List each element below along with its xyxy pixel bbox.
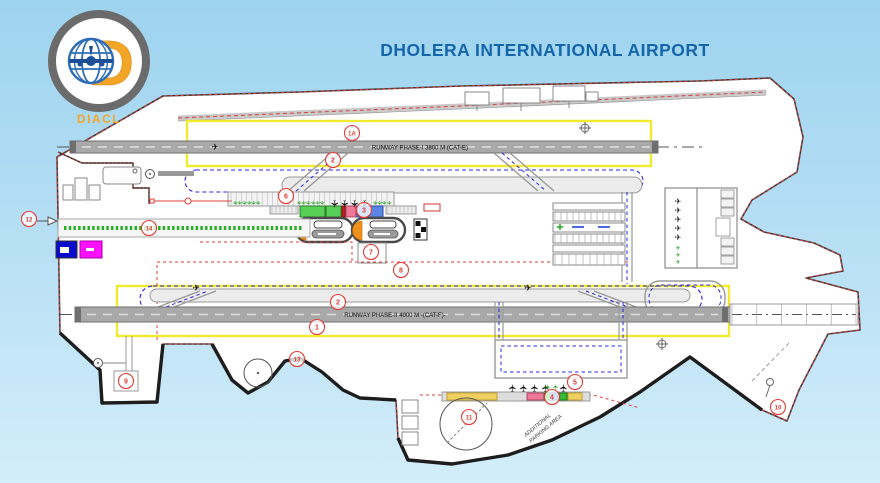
svg-text:12: 12: [26, 217, 33, 223]
callout-1A: 1A: [345, 126, 360, 141]
svg-text:11: 11: [466, 415, 473, 421]
callout-2: 2: [326, 153, 341, 168]
aircraft-icon: ✈: [192, 283, 200, 293]
svg-text:7: 7: [369, 249, 373, 256]
svg-text:3: 3: [362, 207, 366, 214]
airport-masterplan-screen: RUNWAY PHASE-I 3800 M (CAT-E): [0, 0, 880, 483]
svg-text:2: 2: [336, 299, 340, 306]
svg-text:5: 5: [573, 379, 577, 386]
south-small-buildings: [402, 400, 418, 445]
aircraft-icon: ✈: [254, 200, 261, 205]
callout-1: 1: [310, 320, 325, 335]
svg-text:13: 13: [294, 357, 301, 363]
aircraft-icon: ✈: [328, 200, 339, 208]
logo-text: DIACL: [77, 112, 121, 126]
callout-10: 10: [771, 400, 786, 415]
callout-14: 14: [142, 221, 157, 236]
runway2-future-extension: [730, 304, 858, 325]
entry-arrow: [37, 217, 57, 225]
aircraft-icon: ✈: [675, 233, 682, 242]
aircraft-icon: ✈: [524, 283, 532, 293]
callout-4: 4: [545, 390, 560, 405]
west-access-road: [58, 219, 310, 237]
aircraft-icon: ✈: [675, 252, 680, 259]
svg-text:1: 1: [315, 324, 319, 331]
callout-12: 12: [22, 212, 37, 227]
south-stand-strip: [442, 392, 590, 401]
svg-text:6: 6: [284, 193, 288, 200]
aircraft-icon: ✈: [675, 259, 680, 266]
callout-5: 5: [568, 375, 583, 390]
site-outline: [57, 78, 860, 464]
svg-text:9: 9: [124, 378, 128, 385]
aircraft-icon: ✈: [530, 384, 541, 392]
aircraft-icon: ✈: [675, 224, 682, 233]
aircraft-icon: ✈: [338, 200, 349, 208]
landside-loop-east: [352, 218, 405, 242]
aircraft-icon: ✈: [519, 384, 530, 392]
svg-text:4: 4: [550, 394, 554, 401]
callout-8: 8: [394, 263, 409, 278]
callout-2: 2: [331, 295, 346, 310]
svg-text:8: 8: [399, 267, 403, 274]
callout-3: 3: [357, 203, 372, 218]
svg-text:1A: 1A: [348, 131, 356, 137]
airport-logo: D DIACL: [52, 14, 146, 126]
aircraft-icon: ✈: [385, 200, 392, 205]
aircraft-icon: ✈: [508, 384, 519, 392]
svg-text:10: 10: [775, 405, 782, 411]
aircraft-icon: ✈: [675, 245, 680, 252]
callout-13: 13: [290, 352, 305, 367]
svg-text:2: 2: [331, 157, 335, 164]
runway-phase1: RUNWAY PHASE-I 3800 M (CAT-E): [57, 141, 706, 153]
runway-phase1-label: RUNWAY PHASE-I 3800 M (CAT-E): [372, 146, 468, 152]
aircraft-icon: ✈: [675, 206, 682, 215]
callout-9: 9: [119, 374, 134, 389]
aircraft-icon: ✈: [211, 142, 219, 152]
aircraft-icon: ✈: [675, 215, 682, 224]
callout-11: 11: [462, 410, 477, 425]
atc-tower: [414, 219, 427, 240]
aircraft-icon: ✈: [675, 197, 682, 206]
callout-6: 6: [279, 189, 294, 204]
masterplan-drawing: RUNWAY PHASE-I 3800 M (CAT-E): [0, 0, 880, 483]
callout-7: 7: [364, 245, 379, 260]
svg-text:14: 14: [146, 226, 153, 232]
runway-phase2-label: RUNWAY PHASE-II 4000 M -(CAT-F)-: [344, 313, 445, 319]
parking-grid: [553, 203, 625, 265]
page-title: DHOLERA INTERNATIONAL AIRPORT: [380, 40, 710, 60]
site-boundary: [57, 78, 860, 464]
aircraft-icon: ✈: [318, 200, 325, 205]
